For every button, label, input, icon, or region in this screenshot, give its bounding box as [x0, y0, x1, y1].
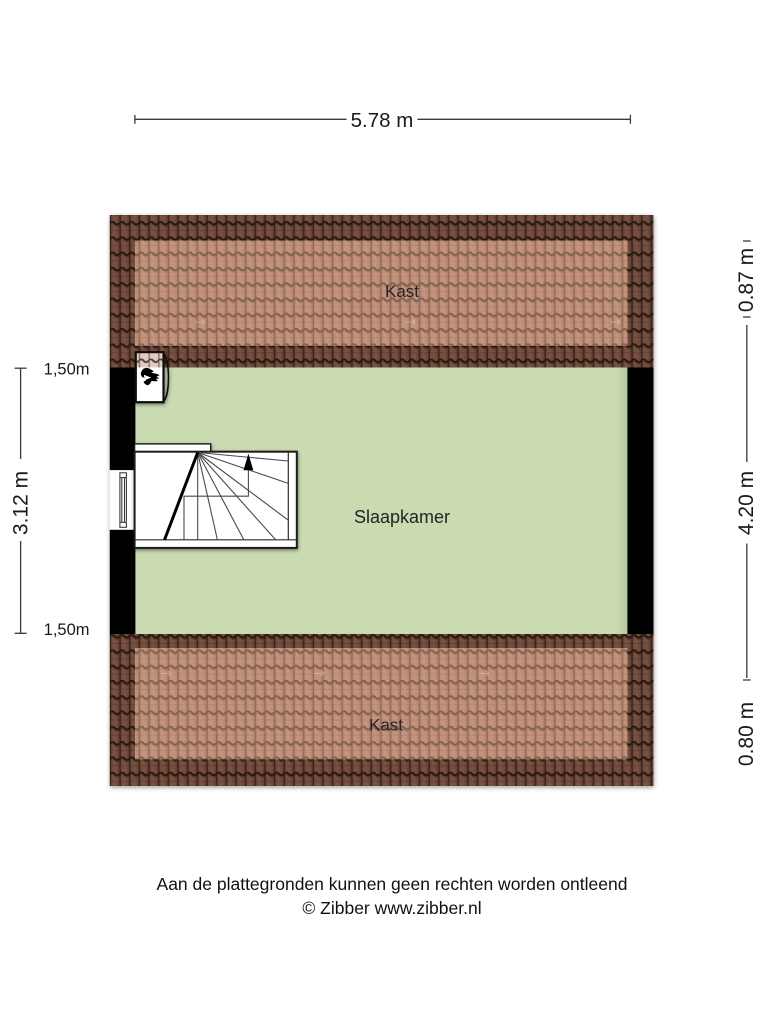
svg-text:1,50m: 1,50m [44, 361, 90, 379]
svg-text:Slaapkamer: Slaapkamer [354, 507, 450, 527]
svg-text:0.87 m: 0.87 m [735, 248, 758, 312]
svg-text:© Zibber www.zibber.nl: © Zibber www.zibber.nl [302, 898, 481, 918]
svg-text:0.80 m: 0.80 m [735, 702, 758, 766]
svg-text:4.20 m: 4.20 m [735, 471, 758, 535]
svg-text:Kast: Kast [385, 282, 419, 301]
svg-text:Kast: Kast [369, 716, 403, 735]
svg-text:3.12 m: 3.12 m [10, 471, 33, 535]
svg-text:5.78 m: 5.78 m [351, 109, 414, 132]
svg-text:Aan de plattegronden kunnen ge: Aan de plattegronden kunnen geen rechten… [157, 874, 628, 894]
svg-text:1,50m: 1,50m [44, 621, 90, 639]
